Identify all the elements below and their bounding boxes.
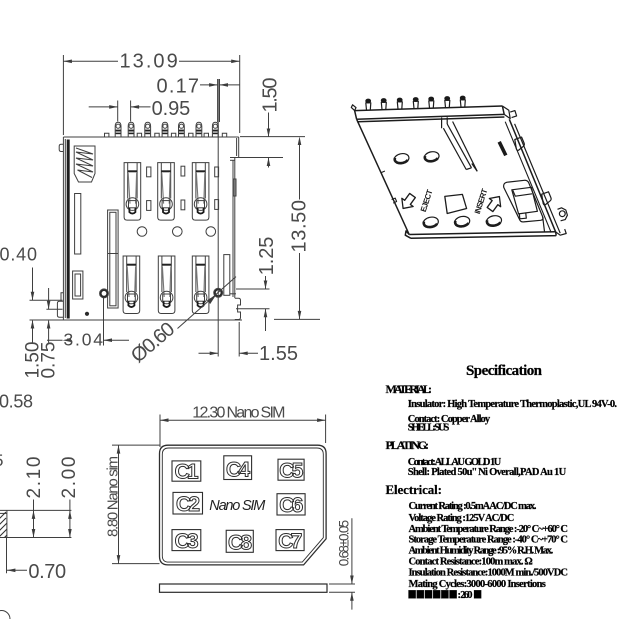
svg-text:Insulator: High Temperature Th: Insulator: High Temperature Thermoplasti… <box>408 399 618 410</box>
svg-text:8.80 Nano sim: 8.80 Nano sim <box>104 456 121 537</box>
svg-text:C5: C5 <box>279 459 303 482</box>
svg-text:PLATING:: PLATING: <box>386 438 430 452</box>
svg-text:0.17: 0.17 <box>157 76 200 98</box>
svg-text:13.09: 13.09 <box>120 51 178 73</box>
svg-text:C6: C6 <box>279 494 303 517</box>
svg-text:Current Rating :0.5mA AC/DC ma: Current Rating :0.5mA AC/DC max. <box>409 501 537 512</box>
svg-text:0.95: 0.95 <box>152 98 191 120</box>
svg-text:Insulation Resistance:1000M m: Insulation Resistance:1000M min./500VDC <box>409 568 569 579</box>
svg-text:5: 5 <box>0 451 3 470</box>
svg-text:0.58: 0.58 <box>0 392 33 412</box>
svg-text:Contact Resistance:100m max.: Contact Resistance:100m max. Ω <box>409 557 533 568</box>
svg-text:12.30 Nano SIM: 12.30 Nano SIM <box>192 404 285 421</box>
svg-text:1.50: 1.50 <box>260 78 282 113</box>
svg-text:C8: C8 <box>228 532 252 555</box>
svg-text:3.04: 3.04 <box>64 330 104 350</box>
svg-text:Ambient Temperature Range :-20: Ambient Temperature Range :-20° C~+60° C <box>409 524 569 535</box>
svg-text:0.75: 0.75 <box>39 342 60 379</box>
svg-text:0.68±0.05: 0.68±0.05 <box>337 520 352 567</box>
svg-text:Electrical:: Electrical: <box>386 482 443 497</box>
svg-text:C4: C4 <box>226 459 250 482</box>
svg-text:Specification: Specification <box>466 363 543 379</box>
svg-text:0.40: 0.40 <box>0 245 37 265</box>
svg-text:2.10: 2.10 <box>24 457 45 499</box>
svg-text:Shell: Plated 50u'' Ni Overall: Shell: Plated 50u'' Ni Overall,PAD Au 1U <box>408 467 567 478</box>
svg-text:C1: C1 <box>175 461 199 484</box>
svg-text:SHELL: SUS: SHELL: SUS <box>408 422 450 433</box>
svg-text:0.70: 0.70 <box>28 561 66 583</box>
svg-text:C3: C3 <box>175 530 199 553</box>
svg-text:: 260: : 260 <box>458 590 473 601</box>
svg-text:1.55: 1.55 <box>259 343 298 365</box>
svg-text:Storage Temperature Range :-40: Storage Temperature Range :-40° C~+70° C <box>409 535 569 546</box>
svg-text:1.25: 1.25 <box>256 237 278 276</box>
svg-text:Voltage Rating :125V AC/DC: Voltage Rating :125V AC/DC <box>409 513 515 524</box>
svg-text:C7: C7 <box>278 530 302 553</box>
svg-text:C2: C2 <box>176 493 200 516</box>
svg-text:Nano SIM: Nano SIM <box>209 498 266 514</box>
svg-text:13.50: 13.50 <box>289 200 311 253</box>
svg-text:MATERIAL:: MATERIAL: <box>386 382 433 396</box>
svg-text:2.00: 2.00 <box>59 457 80 499</box>
svg-text:Mating Cycles:3000-6000 Insert: Mating Cycles:3000-6000 Insertions <box>409 579 546 590</box>
svg-text:Ambient Humidity Range :95% R.: Ambient Humidity Range :95% R.H. Max. <box>409 546 554 557</box>
